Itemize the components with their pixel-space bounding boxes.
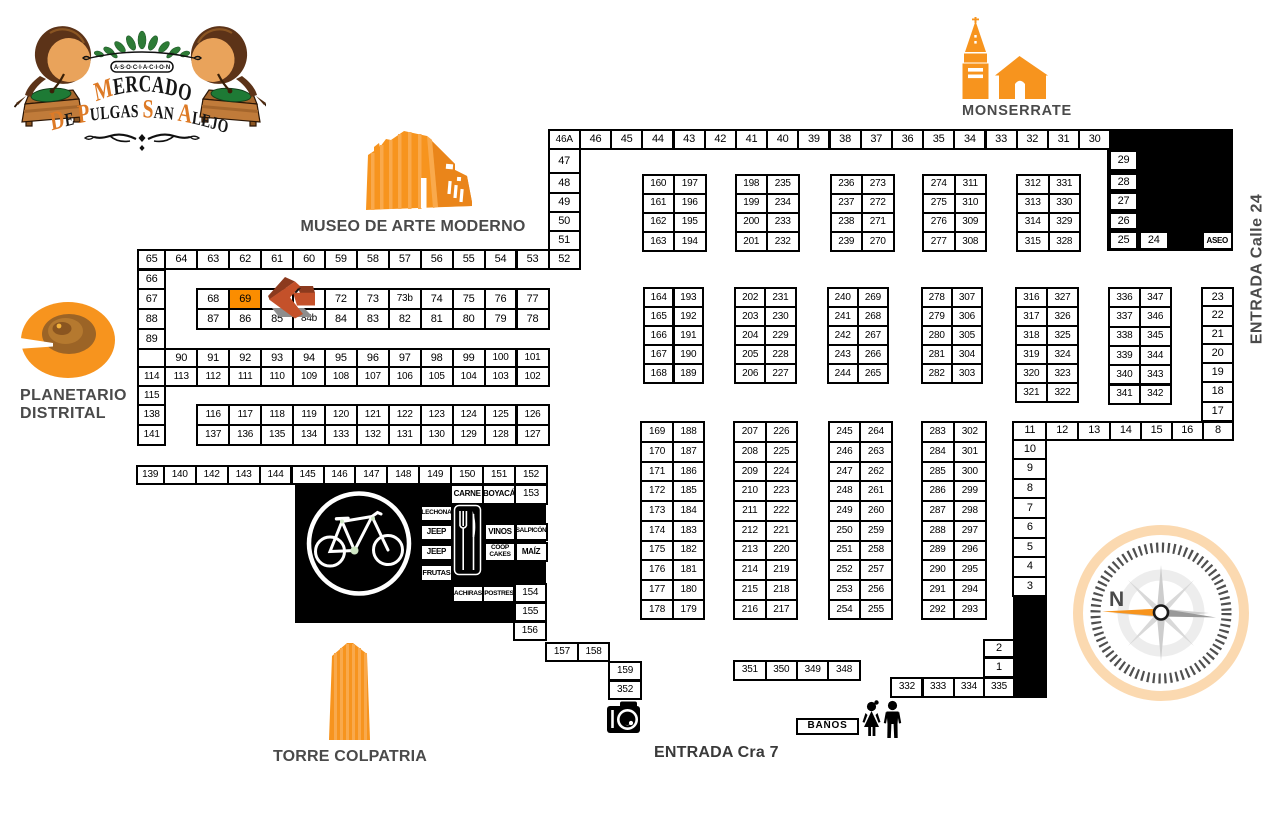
svg-text:N: N [1109, 588, 1124, 611]
